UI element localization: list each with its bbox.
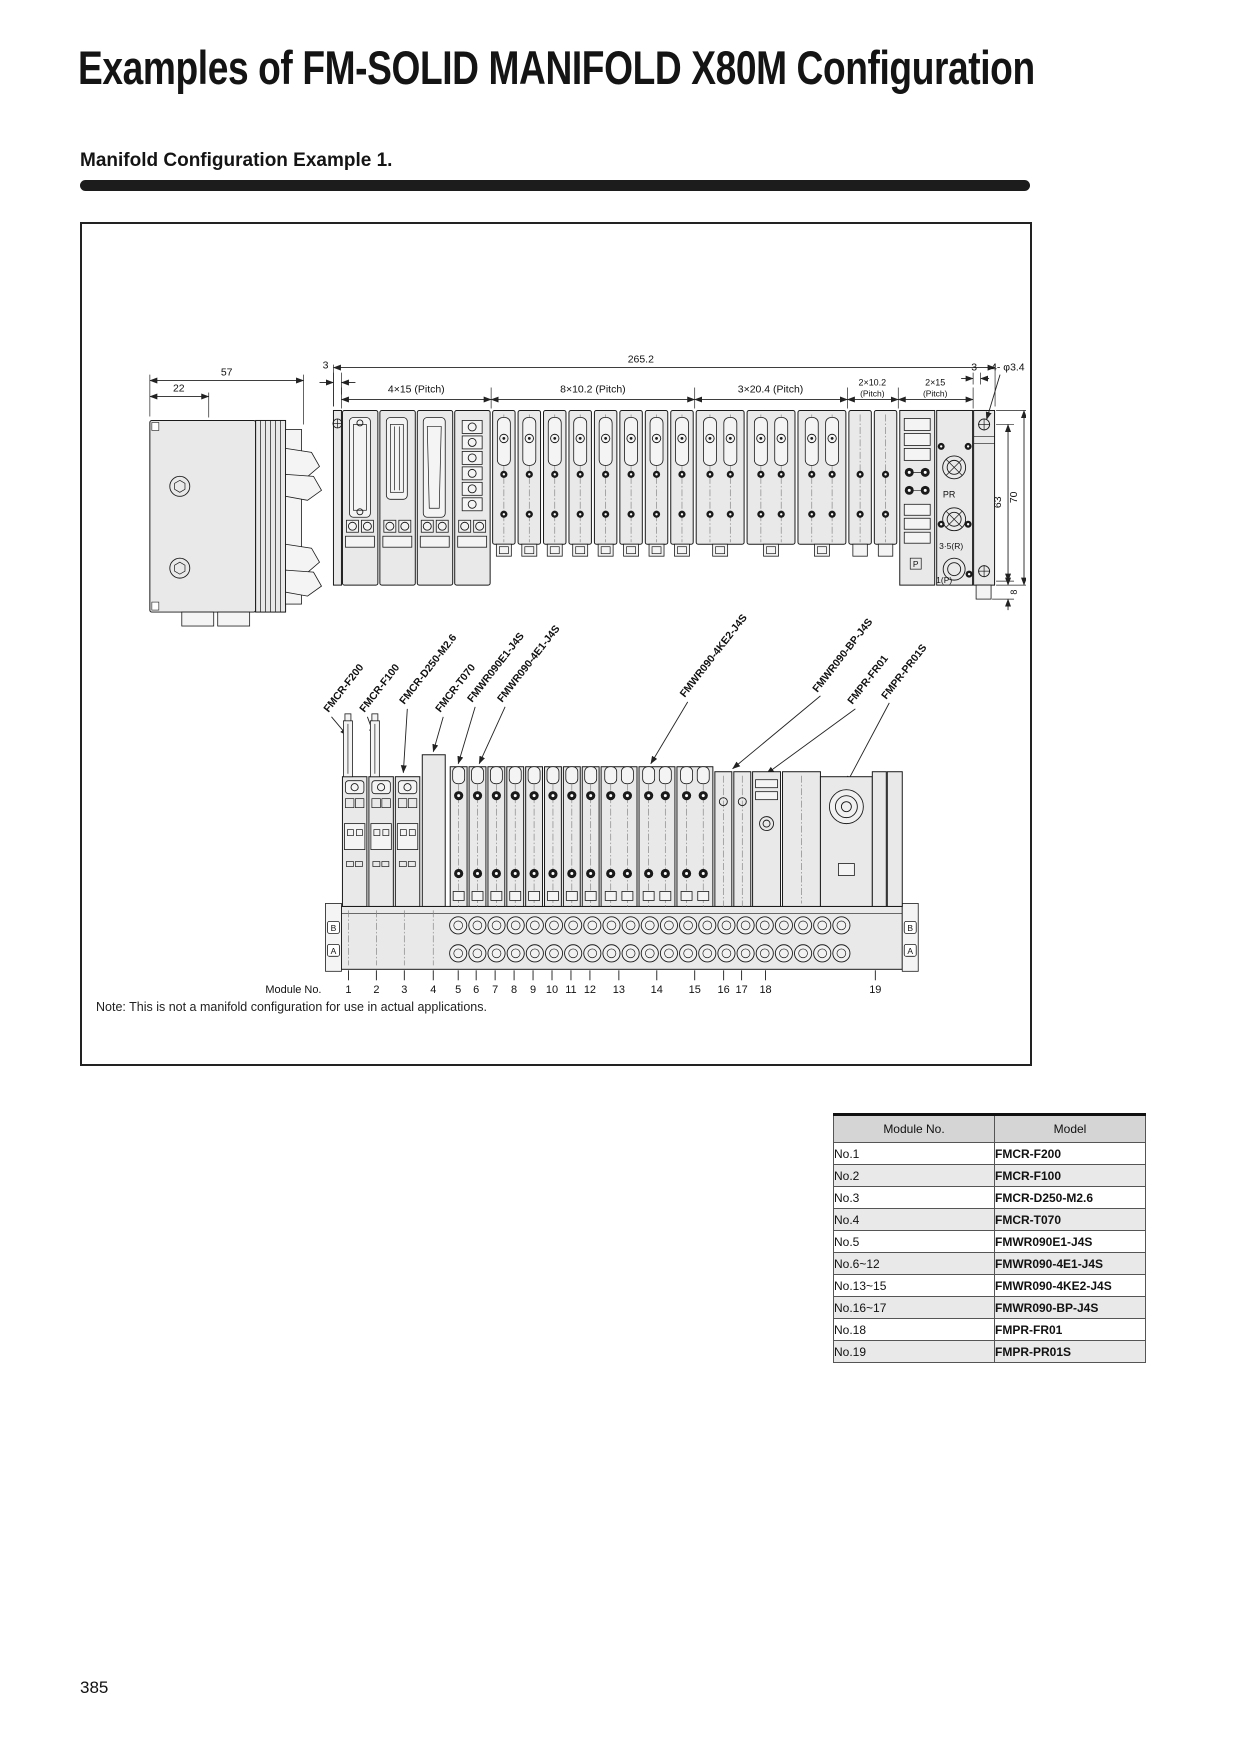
module-number-19: 19: [869, 984, 881, 996]
module-number-17: 17: [736, 984, 748, 996]
dim-3-left: 3: [323, 361, 329, 372]
cell-model: FMWR090-4KE2-J4S: [995, 1275, 1146, 1297]
module-number-2: 2: [373, 984, 379, 996]
dim-57: 57: [221, 368, 233, 379]
cell-module-no: No.18: [834, 1319, 995, 1341]
dim-pitch5-sub: (Pitch): [923, 389, 948, 399]
section-rule: [80, 180, 1030, 191]
cell-model: FMPR-FR01: [995, 1319, 1146, 1341]
module-number-1: 1: [345, 984, 351, 996]
cell-module-no: No.4: [834, 1209, 995, 1231]
dim-overall: 265.2: [628, 355, 654, 366]
catalog-page: Examples of FM-SOLID MANIFOLD X80M Confi…: [0, 0, 1240, 1754]
page-number: 385: [80, 1678, 108, 1698]
table-row: No.19FMPR-PR01S: [834, 1341, 1146, 1363]
cell-model: FMWR090-4E1-J4S: [995, 1253, 1146, 1275]
port-label-p-symbol: P: [913, 559, 919, 569]
dim-pitch1: 4×15 (Pitch): [388, 385, 445, 396]
module-number-15: 15: [689, 984, 701, 996]
module-number-14: 14: [651, 984, 663, 996]
module-model-table: Module No. Model No.1FMCR-F200 No.2FMCR-…: [833, 1113, 1146, 1363]
end-marker-b-left: B: [331, 923, 337, 933]
table-header-module-no: Module No.: [834, 1115, 995, 1143]
dim-holes: 4- φ3.4: [991, 363, 1025, 374]
dim-63: 63: [993, 496, 1004, 508]
table-row: No.16~17FMWR090-BP-J4S: [834, 1297, 1146, 1319]
dim-22: 22: [173, 384, 185, 395]
cell-model: FMCR-F200: [995, 1143, 1146, 1165]
part-label-fmcr-t070: FMCR-T070: [434, 662, 478, 714]
manifold-diagram: 57 22 3: [82, 224, 1026, 1060]
cell-module-no: No.3: [834, 1187, 995, 1209]
part-labels: FMCR-F200 FMCR-F100 FMCR-D250-M2.6 FMCR-…: [322, 613, 929, 715]
table-header-model: Model: [995, 1115, 1146, 1143]
din-clip-top: [286, 448, 320, 478]
module-pr01s-body: [783, 772, 903, 907]
module-number-6: 6: [473, 984, 479, 996]
cell-model: FMPR-PR01S: [995, 1341, 1146, 1363]
table-row: No.3FMCR-D250-M2.6: [834, 1187, 1146, 1209]
dim-3-right: 3: [971, 363, 977, 374]
table-row: No.6~12FMWR090-4E1-J4S: [834, 1253, 1146, 1275]
cell-model: FMWR090E1-J4S: [995, 1231, 1146, 1253]
dim-8: 8: [1009, 590, 1019, 595]
table-row: No.18FMPR-FR01: [834, 1319, 1146, 1341]
module-number-3: 3: [401, 984, 407, 996]
cell-module-no: No.6~12: [834, 1253, 995, 1275]
cell-module-no: No.13~15: [834, 1275, 995, 1297]
cell-module-no: No.1: [834, 1143, 995, 1165]
dim-70: 70: [1009, 491, 1020, 503]
bottom-view: FMCR-F200 FMCR-F100 FMCR-D250-M2.6 FMCR-…: [265, 613, 929, 997]
side-view-dimensions: 57 22 3: [150, 361, 356, 425]
table-header-row: Module No. Model: [834, 1115, 1146, 1143]
end-plate: [974, 410, 995, 599]
part-label-fmwr090-4ke2: FMWR090-4KE2-J4S: [678, 613, 749, 700]
table-row: No.1FMCR-F200: [834, 1143, 1146, 1165]
diagram-note: Note: This is not a manifold configurati…: [96, 1000, 487, 1014]
module-number-9: 9: [530, 984, 536, 996]
part-label-fmpr-pr01s: FMPR-PR01S: [880, 643, 930, 702]
dim-pitch4-sub: (Pitch): [860, 389, 885, 399]
module-number-7: 7: [492, 984, 498, 996]
cell-model: FMWR090-BP-J4S: [995, 1297, 1146, 1319]
port-label-r: 3·5(R): [939, 541, 963, 551]
module-number-18: 18: [759, 984, 771, 996]
cell-module-no: No.5: [834, 1231, 995, 1253]
table-row: No.13~15FMWR090-4KE2-J4S: [834, 1275, 1146, 1297]
end-marker-a-right: A: [907, 946, 913, 956]
module-number-row: Module No. 1 2 3 4 5 6 7 8 9 10 11 12 13…: [265, 984, 881, 996]
module-number-5: 5: [455, 984, 461, 996]
table-row: No.5FMWR090E1-J4S: [834, 1231, 1146, 1253]
manifold-base: B A B A: [325, 903, 918, 971]
dim-pitch2: 8×10.2 (Pitch): [560, 385, 625, 396]
supply-module-fr01: P: [900, 410, 935, 585]
page-title: Examples of FM-SOLID MANIFOLD X80M Confi…: [78, 40, 1035, 95]
section-heading: Manifold Configuration Example 1.: [80, 150, 392, 172]
side-view: [150, 420, 322, 626]
dim-pitch3: 3×20.4 (Pitch): [738, 385, 803, 396]
module-number-4: 4: [430, 984, 436, 996]
cell-model: FMCR-T070: [995, 1209, 1146, 1231]
end-marker-a-left: A: [331, 946, 337, 956]
cell-module-no: No.2: [834, 1165, 995, 1187]
module-no-label: Module No.: [265, 984, 321, 996]
controller-pin-connectors: [343, 714, 379, 777]
supply-module-pr01s: PR 3·5(R) 1(P): [936, 410, 972, 585]
port-label-p: 1(P): [936, 575, 952, 585]
module-fr01-body: [753, 772, 781, 907]
module-number-8: 8: [511, 984, 517, 996]
module-number-12: 12: [584, 984, 596, 996]
dim-pitch4: 2×10.2: [858, 378, 886, 388]
front-view: P PR 3·5(R) 1(P): [333, 410, 995, 599]
table-row: No.4FMCR-T070: [834, 1209, 1146, 1231]
module-number-11: 11: [565, 984, 576, 996]
diagram-box: 57 22 3: [80, 222, 1032, 1066]
module-t070-body: [422, 755, 445, 907]
cell-model: FMCR-F100: [995, 1165, 1146, 1187]
dim-pitch5: 2×15: [925, 378, 945, 388]
port-label-pr: PR: [943, 489, 956, 499]
module-number-16: 16: [718, 984, 730, 996]
module-number-10: 10: [546, 984, 558, 996]
end-marker-b-right: B: [907, 923, 913, 933]
din-clip-bottom: [286, 544, 320, 574]
cell-module-no: No.16~17: [834, 1297, 995, 1319]
table-row: No.2FMCR-F100: [834, 1165, 1146, 1187]
module-number-13: 13: [613, 984, 625, 996]
cell-model: FMCR-D250-M2.6: [995, 1187, 1146, 1209]
cell-module-no: No.19: [834, 1341, 995, 1363]
